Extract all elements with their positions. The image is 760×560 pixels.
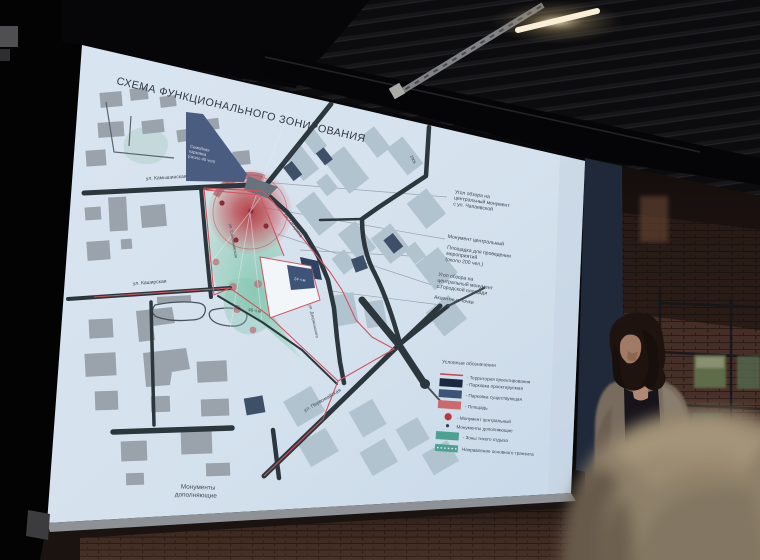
- svg-text:Монументы: Монументы: [181, 483, 216, 491]
- svg-text:дополняющие: дополняющие: [175, 491, 218, 499]
